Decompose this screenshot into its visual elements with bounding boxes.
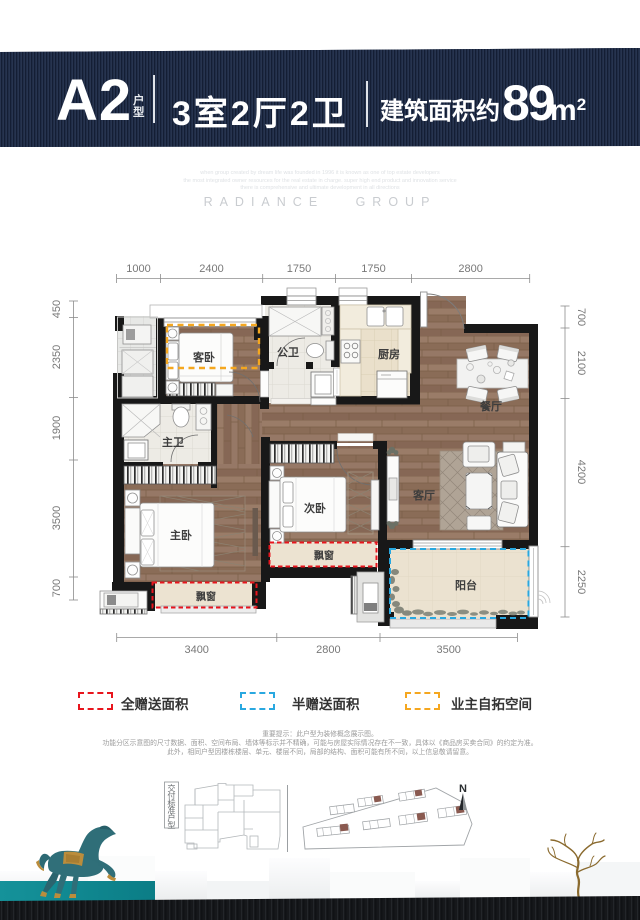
svg-text:型: 型	[167, 821, 175, 830]
